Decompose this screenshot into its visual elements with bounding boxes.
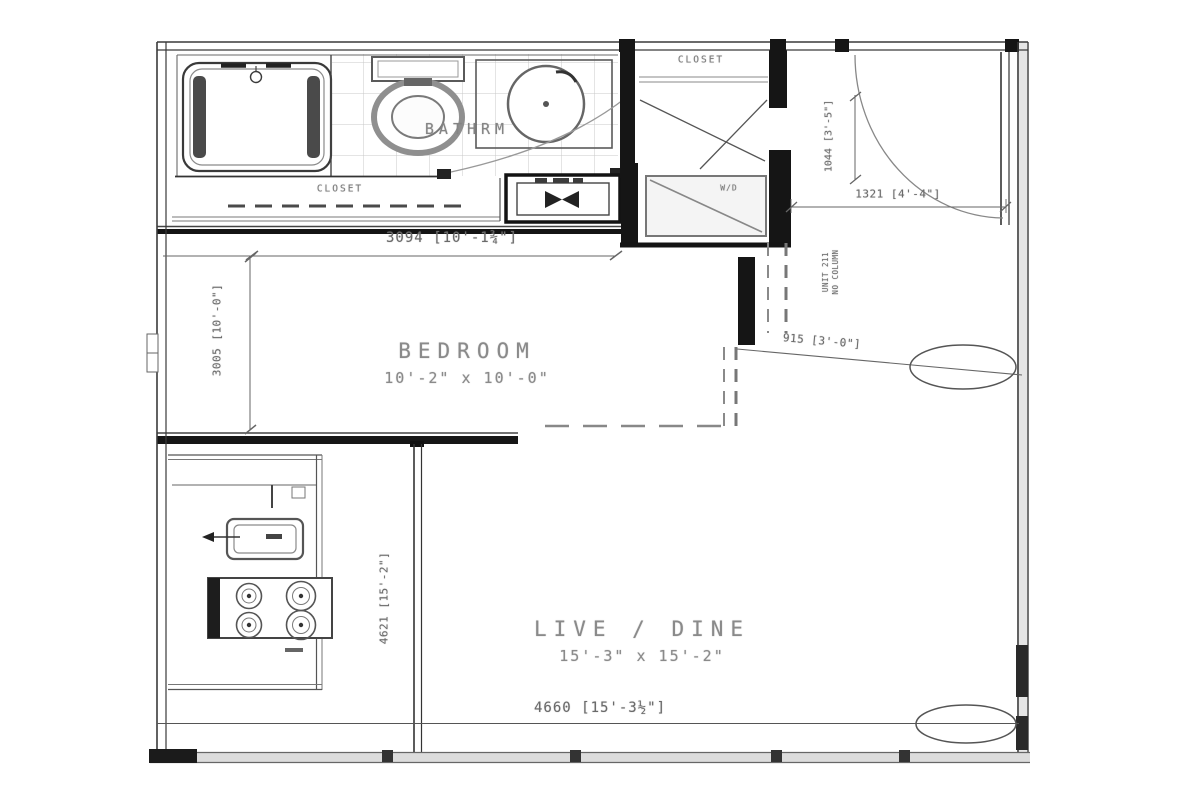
dim-entry-closet: 1044 [3'-5"] (824, 100, 835, 172)
kitchen-wall (410, 441, 424, 752)
dim-living-width: 4660 [15'-3½"] (534, 700, 666, 716)
entry-closet-label: CLOSET (678, 55, 724, 66)
water-heater-unit (506, 175, 620, 222)
washer-dryer-label: W/D (720, 184, 737, 193)
floorplan-canvas: BATHRM CLOSET CLOSET W/D BEDROOM 10'-2" … (0, 0, 1200, 805)
window-wall (149, 724, 1030, 764)
kitchen-sink (202, 519, 303, 559)
dim-bedroom-depth: 3005 [10'-0"] (211, 284, 224, 377)
unit-note-line1: UNIT 211 (821, 249, 831, 294)
dim-bedroom-width: 3094 [10'-1¾"] (386, 230, 518, 246)
bedroom-partition-dashed (545, 243, 786, 428)
dim-entry-width: 1321 [4'-4"] (855, 188, 940, 201)
hall-closet-label: CLOSET (317, 184, 363, 195)
kitchen-counter (168, 455, 322, 690)
unit-note: UNIT 211 NO COLUMN (821, 249, 841, 294)
bedroom-south-wall (157, 433, 518, 444)
toilet (372, 57, 464, 153)
washer-dryer-closet (620, 42, 791, 247)
stove (208, 578, 332, 652)
unit-note-line2: NO COLUMN (831, 249, 841, 294)
bedroom-size: 10'-2" x 10'-0" (384, 369, 549, 387)
bathroom-label: BATHRM (425, 120, 509, 138)
dim-kitchen-run: 4621 [15'-2"] (378, 552, 391, 645)
bedroom-name: BEDROOM (398, 339, 536, 363)
livedine-size: 15'-3" x 15'-2" (559, 647, 724, 665)
entry-closet (639, 50, 787, 169)
livedine-name: LIVE / DINE (534, 617, 750, 641)
bathtub (183, 63, 331, 171)
door-callout-ellipse (910, 345, 1016, 389)
floorplan-drawing (0, 0, 1200, 805)
